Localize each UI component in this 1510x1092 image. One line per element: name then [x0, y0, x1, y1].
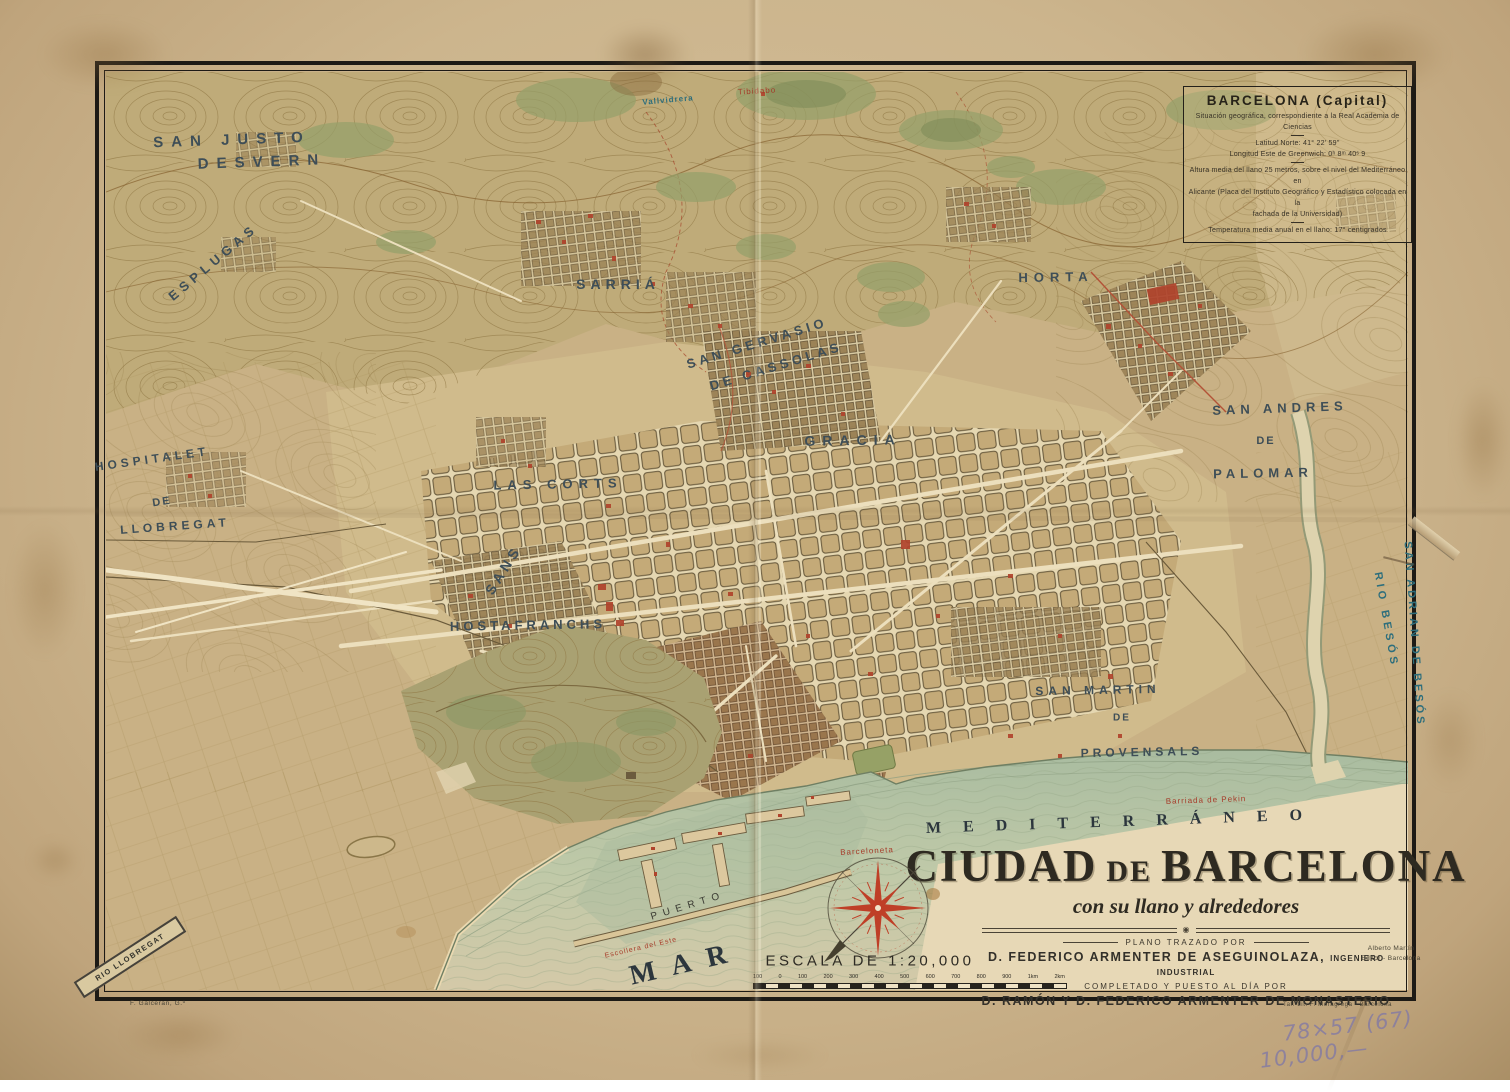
info-box-latitude: Latitud Norte: 41° 22' 59" [1187, 138, 1408, 149]
dash [1254, 942, 1309, 943]
pencil-annotation: 78×57 (67) 10,000,— [1213, 1006, 1417, 1078]
scale-tick: 1km [1028, 974, 1038, 980]
scale-tick: 200 [823, 974, 832, 980]
label-hostafranchs: HOSTAFRANCHS [450, 616, 606, 634]
scale-tick: 800 [977, 974, 986, 980]
publisher-city: Editor - Barcelona [1346, 954, 1436, 964]
label-san-martin-2: DE [1113, 713, 1131, 724]
stain [690, 1040, 830, 1070]
label-horta: HORTA [1018, 269, 1094, 285]
stain [10, 520, 80, 660]
publisher-imprint: Alberto Martín Editor - Barcelona [1346, 944, 1436, 964]
publisher-name: Alberto Martín [1346, 944, 1436, 954]
map-title-word-2: DE [1106, 855, 1152, 889]
scale-tick: 2km [1054, 974, 1064, 980]
scale-tick: 900 [1002, 974, 1011, 980]
info-box-subtitle: Situación geográfica, correspondiente a … [1187, 111, 1408, 133]
scale-tick: 700 [951, 974, 960, 980]
info-box-title: BARCELONA (Capital) [1187, 93, 1408, 108]
info-box-temperature: Temperatura media anual en el llano: 17°… [1187, 225, 1408, 236]
engraver-credit: F. Galceran, G.º [130, 1000, 186, 1007]
dash [1063, 942, 1118, 943]
map-title: CIUDAD DE BARCELONA [962, 840, 1410, 892]
label-san-martin-1: SAN MARTIN [1035, 682, 1161, 698]
label-san-andres-2: DE [1256, 435, 1275, 447]
ornament-line [982, 928, 1177, 933]
scale-tick: 0 [779, 974, 782, 980]
stain [1455, 380, 1510, 500]
scale-bar [753, 983, 1067, 989]
divider [1291, 222, 1304, 223]
scale-tick: 300 [849, 974, 858, 980]
stain [120, 1010, 240, 1060]
drawn-by-label: PLANO TRAZADO POR [1126, 938, 1247, 947]
label-san-andres-3: PALOMAR [1213, 465, 1313, 482]
label-gracia: GRACIA [804, 431, 901, 449]
map-photo: SAN JUSTO DESVERN ESPLUGAS HOSPITALET DE… [0, 0, 1510, 1080]
map-title-word-3: BARCELONA [1161, 840, 1467, 892]
scale-label: ESCALA DE 1:20,000 [766, 953, 975, 970]
printer-credit: Tal.-Lit. F. Moragrega - Barcelona [1283, 1002, 1392, 1008]
drawn-by-row: PLANO TRAZADO POR [962, 938, 1410, 947]
scale-tick: 400 [875, 974, 884, 980]
divider [1291, 162, 1304, 163]
scale-tick: 600 [926, 974, 935, 980]
divider [1291, 135, 1304, 136]
ornament-medallion-icon: ◉ [1183, 926, 1190, 934]
stain [1420, 690, 1480, 790]
author-1-name: D. FEDERICO ARMENTER DE ASEGUINOLAZA, [988, 950, 1325, 964]
label-san-martin-3: PROVENSALS [1081, 744, 1204, 760]
info-box-altitude-2: Alicante (Placa del Instituto Geográfico… [1187, 187, 1408, 209]
info-box-longitude: Longitud Este de Greenwich: 0ʰ 8ᵐ 40ˢ 9 [1187, 149, 1408, 160]
scale-tick: 500 [900, 974, 909, 980]
info-box-altitude-3: fachada de la Universidad) [1187, 209, 1408, 220]
info-box: BARCELONA (Capital) Situación geográfica… [1183, 86, 1412, 243]
compass-rose [816, 846, 940, 970]
stain [30, 840, 80, 880]
ornament-line [1196, 928, 1391, 933]
scale-tick: 100 [798, 974, 807, 980]
label-sarria: SARRIÁ [576, 276, 660, 292]
map-subtitle: con su llano y alrededores [962, 894, 1410, 919]
scale-tick: 100 [753, 974, 762, 980]
label-las-corts: LAS CORTS [493, 475, 622, 492]
scale-ticks: 100 0 100 200 300 400 500 600 700 800 90… [753, 974, 1065, 980]
ornament-divider: ◉ [982, 926, 1390, 934]
info-box-altitude-1: Altura media del llano 25 metros, sobre … [1187, 165, 1408, 187]
